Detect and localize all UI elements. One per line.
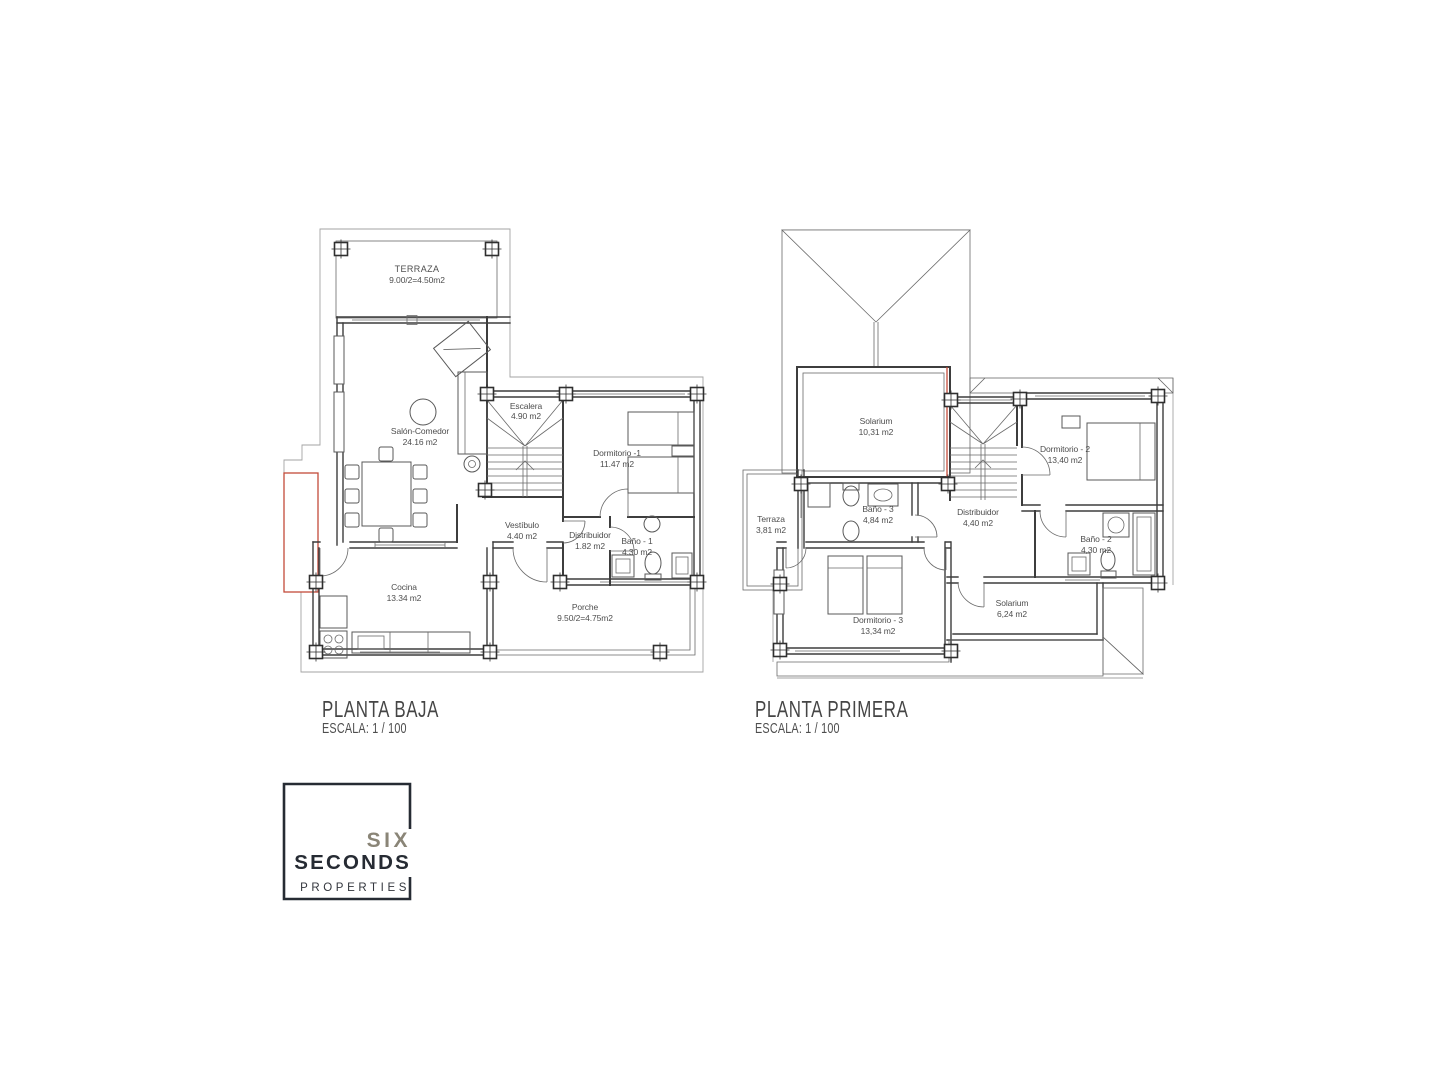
plan-scale-planta-baja: ESCALA: 1 / 100: [322, 719, 407, 736]
logo-word-properties: PROPERTIES: [300, 882, 410, 894]
column-marker: [483, 240, 502, 259]
column-marker: [476, 481, 495, 500]
room-label: Baño - 3: [862, 504, 894, 514]
room-label: Salón-Comedor: [391, 426, 449, 436]
logo-word-six: SIX: [367, 829, 411, 852]
room-area: 9.50/2=4.75m2: [557, 613, 613, 623]
column-marker: [771, 641, 790, 660]
room-area: 13,34 m2: [861, 626, 896, 636]
column-marker: [557, 385, 576, 404]
column-marker: [481, 573, 500, 592]
column-marker: [478, 385, 497, 404]
room-label: Baño - 2: [1080, 534, 1112, 544]
floor-plan-canvas: TERRAZA 9.00/2=4.50m2 Salón-Comedor 24.1…: [0, 0, 1440, 1080]
room-area: 1.82 m2: [575, 541, 605, 551]
room-label: Terraza: [757, 514, 785, 524]
staircase: [950, 405, 1017, 500]
exterior-walls: [313, 316, 700, 656]
room-area: 6,24 m2: [997, 609, 1027, 619]
room-label: Porche: [572, 602, 599, 612]
column-marker: [1149, 574, 1168, 593]
room-area: 13.34 m2: [387, 593, 422, 603]
room-area: 4.30 m2: [622, 547, 652, 557]
column-marker: [939, 475, 958, 494]
room-label: Solarium: [996, 598, 1029, 608]
column-marker: [942, 642, 961, 661]
plan-scale-planta-primera: ESCALA: 1 / 100: [755, 719, 840, 736]
room-area: 24.16 m2: [403, 437, 438, 447]
room-label: Solarium: [860, 416, 893, 426]
roof-strip: [970, 378, 1173, 393]
plan-titles: PLANTA BAJA ESCALA: 1 / 100 PLANTA PRIME…: [322, 696, 908, 736]
room-area: 4.90 m2: [511, 411, 541, 421]
room-label: Dormitorio -1: [593, 448, 641, 458]
column-marker: [307, 643, 326, 662]
column-marker: [1011, 390, 1030, 409]
planta-primera-plan: Solarium 10,31 m2 Terraza 3,81 m2 Baño -…: [743, 230, 1173, 678]
room-label: Dormitorio - 3: [853, 615, 903, 625]
room-area: 4,30 m2: [1081, 545, 1111, 555]
logo-word-seconds: SECONDS: [294, 851, 411, 874]
column-marker: [942, 391, 961, 410]
column-marker: [551, 573, 570, 592]
room-area: 3,81 m2: [756, 525, 786, 535]
room-area: 11.47 m2: [600, 459, 634, 469]
column-marker: [688, 385, 707, 404]
room-label: Cocina: [391, 582, 417, 592]
furniture-dormitorio-3: [828, 556, 902, 614]
column-marker: [688, 573, 707, 592]
room-area: 4.40 m2: [507, 531, 537, 541]
columns: [307, 240, 707, 662]
room-label: Dormitorio - 2: [1040, 444, 1090, 454]
room-label: Vestíbulo: [505, 520, 539, 530]
column-marker: [332, 240, 351, 259]
room-label: Baño - 1: [621, 536, 653, 546]
room-area: 4,40 m2: [963, 518, 993, 528]
column-marker: [307, 573, 326, 592]
six-seconds-logo: SIX SECONDS PROPERTIES: [284, 784, 411, 899]
room-area: 4,84 m2: [863, 515, 893, 525]
room-label: TERRAZA: [395, 264, 440, 274]
room-label: Escalera: [510, 401, 543, 411]
planta-baja-plan: TERRAZA 9.00/2=4.50m2 Salón-Comedor 24.1…: [284, 229, 707, 672]
room-area: 10,31 m2: [859, 427, 894, 437]
column-marker: [651, 643, 670, 662]
lower-roofs: [777, 588, 1143, 676]
room-label: Distribuidor: [569, 530, 611, 540]
column-marker: [1149, 387, 1168, 406]
room-area: 13,40 m2: [1048, 455, 1083, 465]
column-marker: [771, 575, 790, 594]
room-area: 9.00/2=4.50m2: [389, 275, 445, 285]
column-marker: [481, 643, 500, 662]
column-marker: [792, 475, 811, 494]
room-label: Distribuidor: [957, 507, 999, 517]
